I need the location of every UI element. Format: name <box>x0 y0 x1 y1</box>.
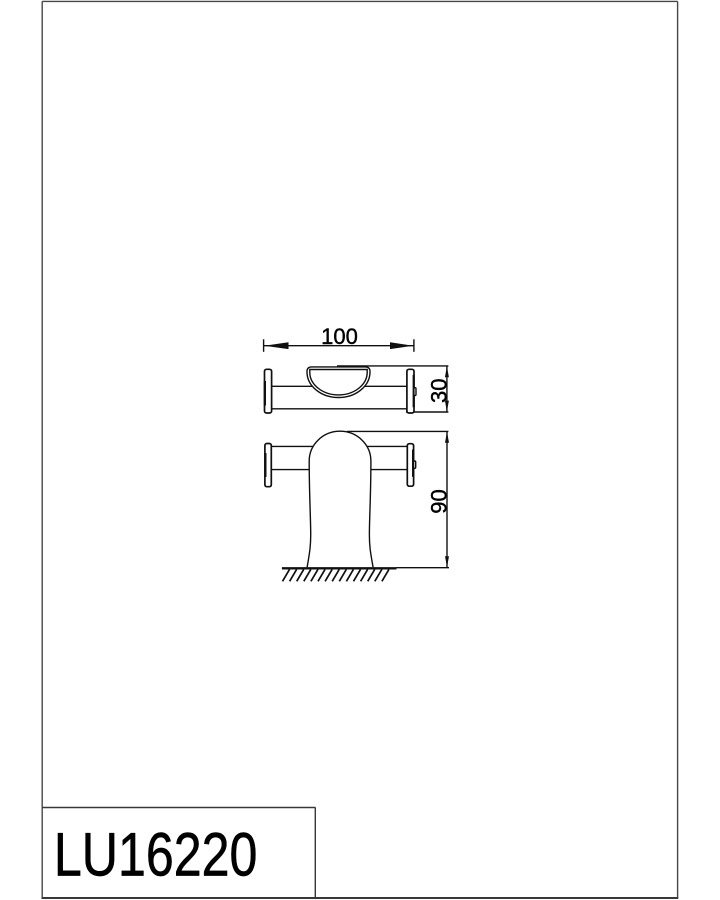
svg-text:30: 30 <box>426 379 451 403</box>
svg-text:100: 100 <box>321 324 358 349</box>
svg-text:90: 90 <box>426 489 451 513</box>
svg-text:LU16220: LU16220 <box>54 819 257 888</box>
